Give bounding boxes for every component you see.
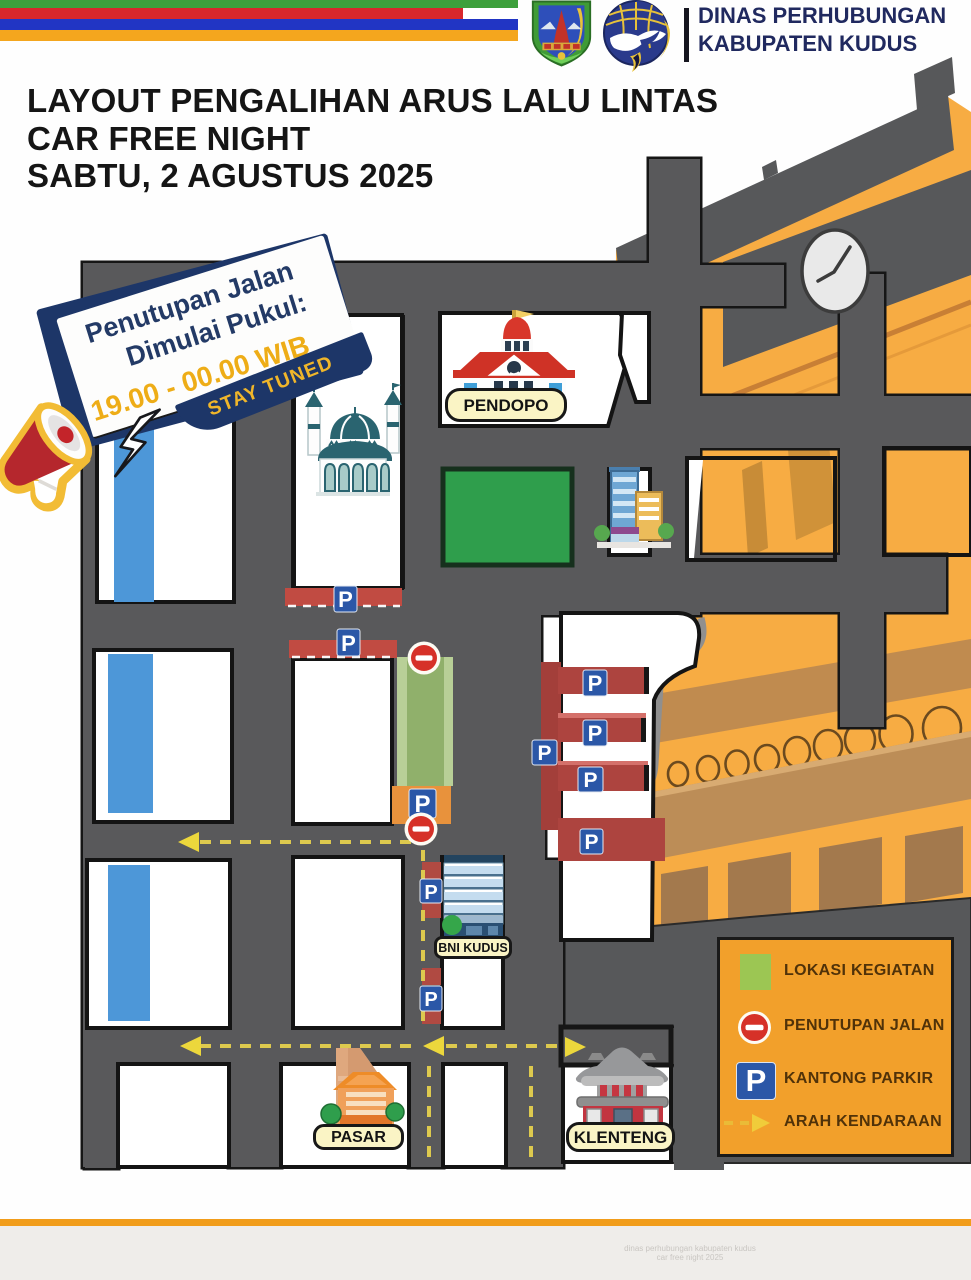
svg-text:P: P: [588, 671, 603, 696]
svg-text:P: P: [583, 769, 597, 792]
svg-text:P: P: [584, 831, 598, 854]
svg-text:P: P: [537, 742, 551, 765]
svg-text:P: P: [424, 989, 437, 1011]
svg-text:P: P: [424, 882, 437, 904]
svg-text:P: P: [341, 631, 356, 656]
svg-text:P: P: [588, 721, 603, 746]
svg-text:P: P: [338, 587, 353, 612]
